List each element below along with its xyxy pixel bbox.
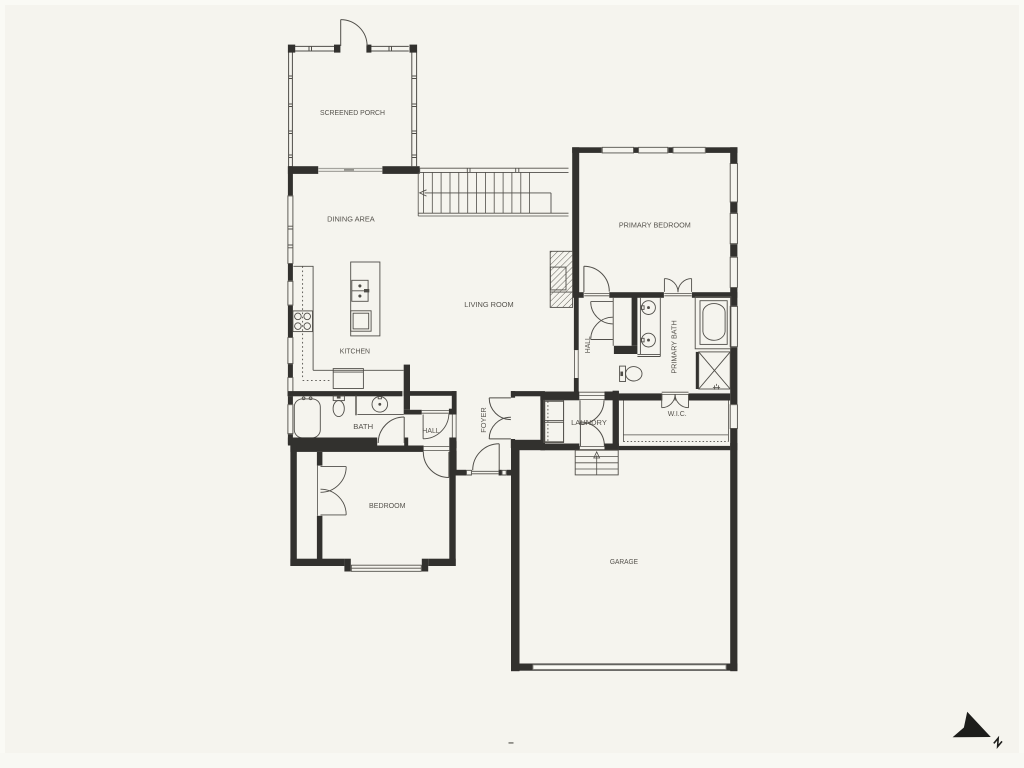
svg-text:PRIMARY BATH: PRIMARY BATH xyxy=(670,320,679,373)
svg-text:DINING AREA: DINING AREA xyxy=(327,215,375,224)
svg-text:BEDROOM: BEDROOM xyxy=(369,501,406,510)
svg-text:W.I.C.: W.I.C. xyxy=(668,409,687,418)
svg-text:GARAGE: GARAGE xyxy=(610,557,638,566)
svg-text:BATH: BATH xyxy=(353,422,373,431)
svg-text:LIVING ROOM: LIVING ROOM xyxy=(464,300,513,309)
svg-text:KITCHEN: KITCHEN xyxy=(340,347,370,356)
svg-text:SCREENED PORCH: SCREENED PORCH xyxy=(320,108,385,117)
svg-text:HALL: HALL xyxy=(583,336,592,353)
svg-text:HALL: HALL xyxy=(422,426,439,435)
svg-text:LAUNDRY: LAUNDRY xyxy=(571,418,607,427)
svg-text:PRIMARY BEDROOM: PRIMARY BEDROOM xyxy=(619,221,691,230)
svg-text:FOYER: FOYER xyxy=(479,407,488,433)
